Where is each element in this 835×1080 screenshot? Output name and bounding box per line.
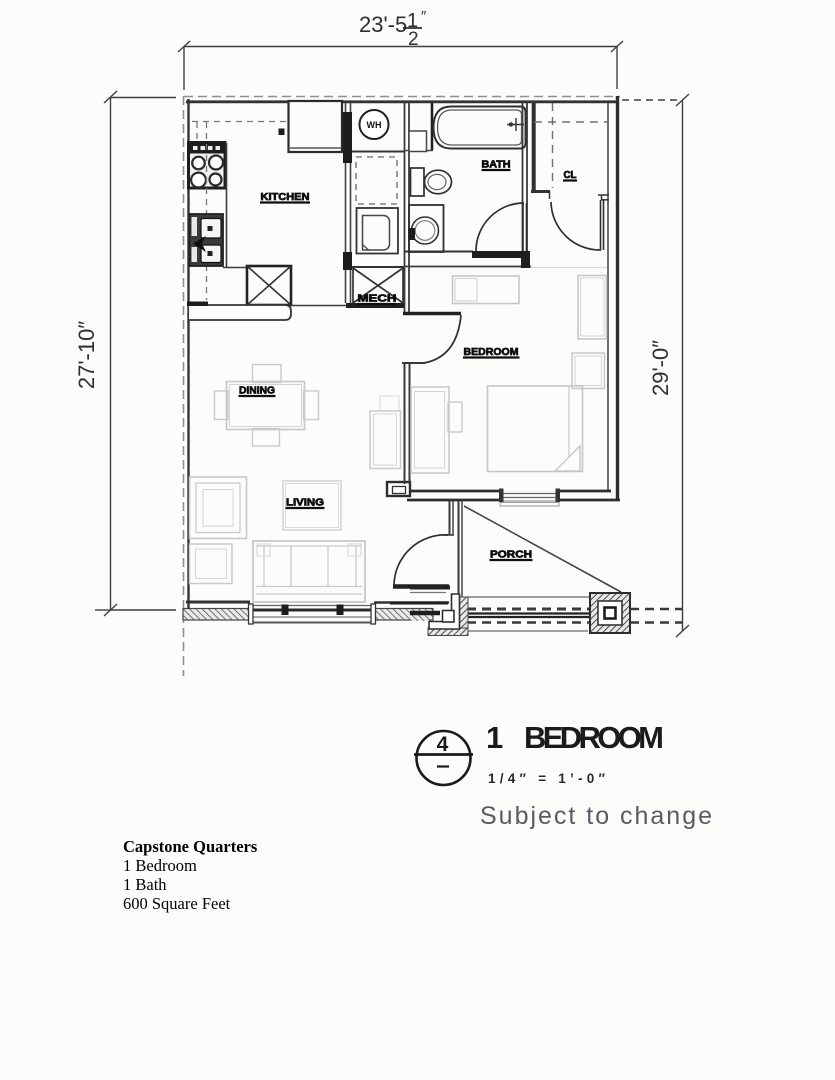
svg-text:LIVING: LIVING: [286, 497, 324, 509]
svg-text:Capstone Quarters: Capstone Quarters: [123, 837, 258, 856]
svg-text:Subject to change: Subject to change: [480, 802, 712, 830]
svg-text:29'-0″: 29'-0″: [648, 340, 673, 396]
svg-text:BATH: BATH: [482, 160, 511, 171]
svg-text:2: 2: [408, 29, 419, 50]
svg-text:1 Bedroom: 1 Bedroom: [123, 856, 197, 875]
svg-text:27'-10″: 27'-10″: [74, 321, 99, 389]
svg-text:PORCH: PORCH: [490, 549, 532, 561]
svg-text:1: 1: [486, 720, 503, 755]
svg-text:CL: CL: [564, 170, 577, 181]
svg-text:″: ″: [421, 8, 427, 25]
svg-text:4: 4: [437, 733, 449, 756]
svg-text:BEDROOM: BEDROOM: [524, 720, 664, 755]
svg-text:MECH: MECH: [358, 294, 397, 305]
svg-text:1 Bath: 1 Bath: [123, 875, 167, 894]
svg-text:WH: WH: [367, 120, 382, 130]
svg-text:1/4″ = 1’-0″: 1/4″ = 1’-0″: [488, 771, 606, 786]
svg-text:600 Square Feet: 600 Square Feet: [123, 894, 231, 913]
svg-text:KITCHEN: KITCHEN: [261, 191, 310, 203]
svg-text:23'-5: 23'-5: [359, 12, 407, 37]
svg-text:DINING: DINING: [239, 385, 275, 397]
svg-text:BEDROOM: BEDROOM: [464, 346, 519, 358]
